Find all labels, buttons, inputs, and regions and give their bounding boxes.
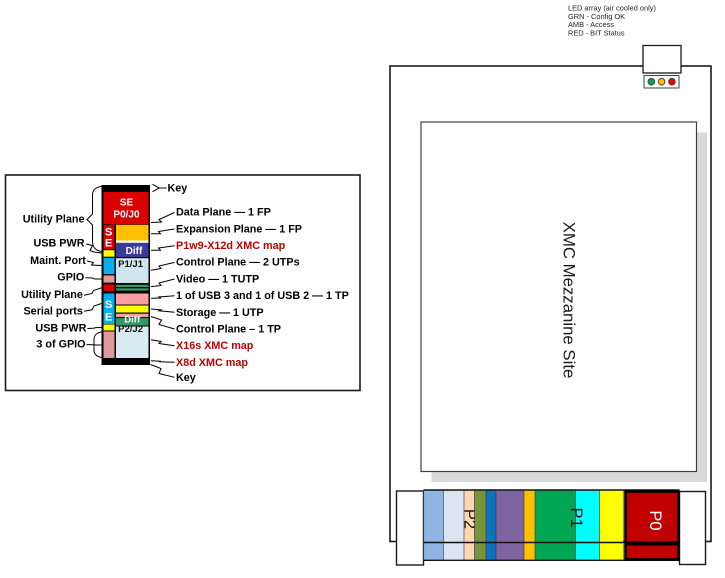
svg-text:Serial ports: Serial ports — [23, 305, 82, 317]
svg-text:Utility Plane: Utility Plane — [21, 289, 83, 301]
svg-text:USB PWR: USB PWR — [35, 323, 86, 335]
svg-text:S: S — [105, 226, 113, 238]
svg-text:X8d XMC map: X8d XMC map — [176, 357, 248, 369]
svg-text:E: E — [105, 311, 113, 323]
svg-text:1 of USB 3 and 1 of USB 2 — 1: 1 of USB 3 and 1 of USB 2 — 1 TP — [176, 290, 349, 302]
svg-text:S: S — [105, 299, 113, 311]
svg-text:Storage — 1 UTP: Storage — 1 UTP — [176, 307, 264, 319]
svg-text:Key: Key — [168, 182, 188, 194]
svg-text:P1/J1: P1/J1 — [118, 259, 144, 270]
svg-text:P2/J2: P2/J2 — [118, 324, 143, 335]
svg-text:Data Plane — 1 FP: Data Plane — 1 FP — [176, 207, 271, 219]
svg-text:3 of GPIO: 3 of GPIO — [36, 339, 85, 351]
svg-text:E: E — [105, 238, 113, 250]
svg-text:GPIO: GPIO — [57, 272, 84, 284]
svg-text:USB PWR: USB PWR — [34, 238, 85, 250]
svg-text:P0: P0 — [646, 510, 664, 530]
svg-text:Diff: Diff — [126, 246, 143, 257]
svg-text:XMC Mezzanine Site: XMC Mezzanine Site — [560, 222, 579, 379]
svg-text:Video — 1 TUTP: Video — 1 TUTP — [176, 273, 259, 285]
svg-text:SE: SE — [120, 198, 134, 209]
svg-text:P0/J0: P0/J0 — [113, 210, 140, 221]
svg-text:Key: Key — [176, 372, 196, 384]
svg-text:P1w9-X12d XMC map: P1w9-X12d XMC map — [176, 240, 286, 252]
svg-text:Control Plane – 1 TP: Control Plane – 1 TP — [176, 324, 281, 336]
svg-text:Expansion Plane — 1 FP: Expansion Plane — 1 FP — [176, 223, 302, 235]
svg-text:RED - BIT Status: RED - BIT Status — [568, 28, 625, 37]
svg-text:X16s XMC map: X16s XMC map — [176, 340, 254, 352]
svg-text:Maint. Port: Maint. Port — [30, 255, 86, 267]
svg-text:Control Plane — 2 UTPs: Control Plane — 2 UTPs — [176, 257, 300, 269]
svg-text:Utility Plane: Utility Plane — [23, 213, 85, 225]
